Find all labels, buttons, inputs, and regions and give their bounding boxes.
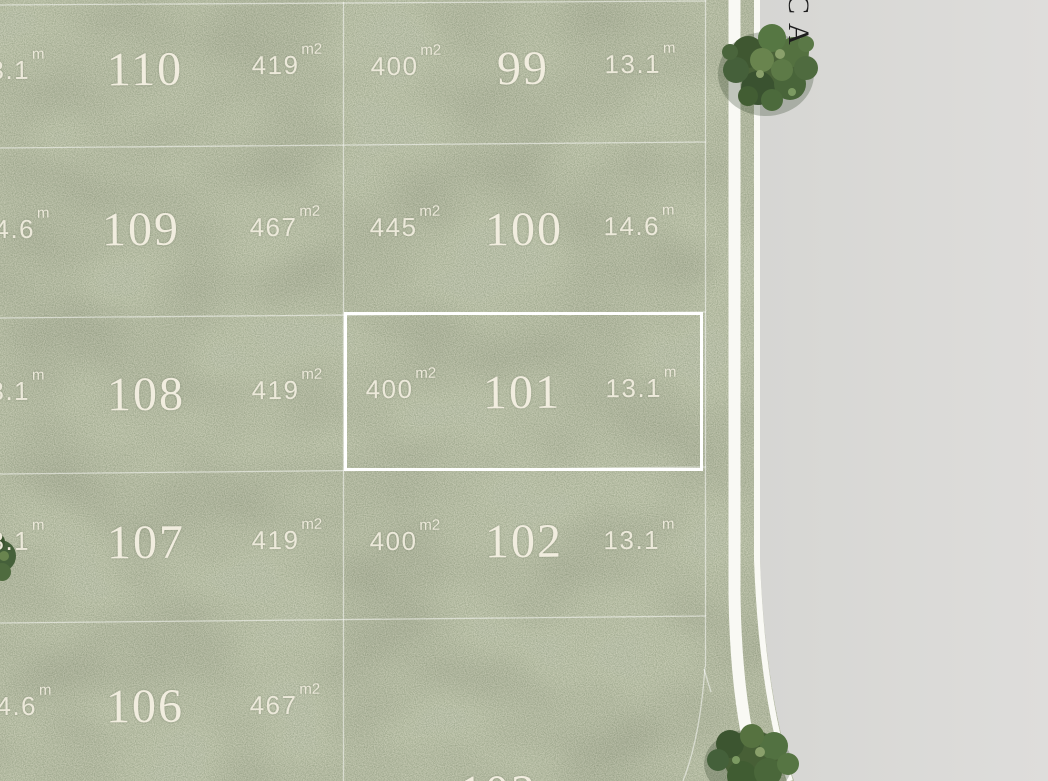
lot-99-frontage: 13.1m [604,51,675,78]
lot-109-frontage: 14.6m [0,216,50,243]
lot-101-number[interactable]: 101 [483,369,561,418]
lot-102-area: 400m2 [370,528,441,555]
lot-107-frontage: 13.1m [0,528,45,555]
lot-110-area: 419m2 [252,52,323,79]
lot-107-number[interactable]: 107 [107,519,185,568]
lot-106-number[interactable]: 106 [106,683,184,732]
lot-109-number[interactable]: 109 [102,206,180,255]
lot-108-number[interactable]: 108 [107,371,185,420]
lot-110-frontage: 13.1m [0,57,45,84]
lot-108-frontage: 13.1m [0,378,45,405]
lot-103-number[interactable]: 103 [459,769,537,781]
lot-106-area: 467m2 [250,692,321,719]
lot-107-area: 419m2 [252,527,323,554]
lot-101-frontage: 13.1m [605,375,676,402]
lot-101-area: 400m2 [366,376,437,403]
lot-106-frontage: 14.6m [0,693,52,720]
lot-108-area: 419m2 [252,377,323,404]
lot-109-area: 467m2 [250,214,321,241]
lot-102-number[interactable]: 102 [485,518,563,567]
lot-100-frontage: 14.6m [603,213,674,240]
lot-100-number[interactable]: 100 [485,206,563,255]
masterplan-map: CA 13.1m 110 419m2 400m2 99 13.1m 14.6m … [0,0,1048,781]
road-pavement [760,0,1048,781]
lot-99-number[interactable]: 99 [497,45,549,93]
street-name-label: CA [783,0,813,54]
lot-102-frontage: 13.1m [603,527,674,554]
lot-100-area: 445m2 [370,214,441,241]
lot-110-number[interactable]: 110 [107,46,184,95]
lot-99-area: 400m2 [371,53,442,80]
